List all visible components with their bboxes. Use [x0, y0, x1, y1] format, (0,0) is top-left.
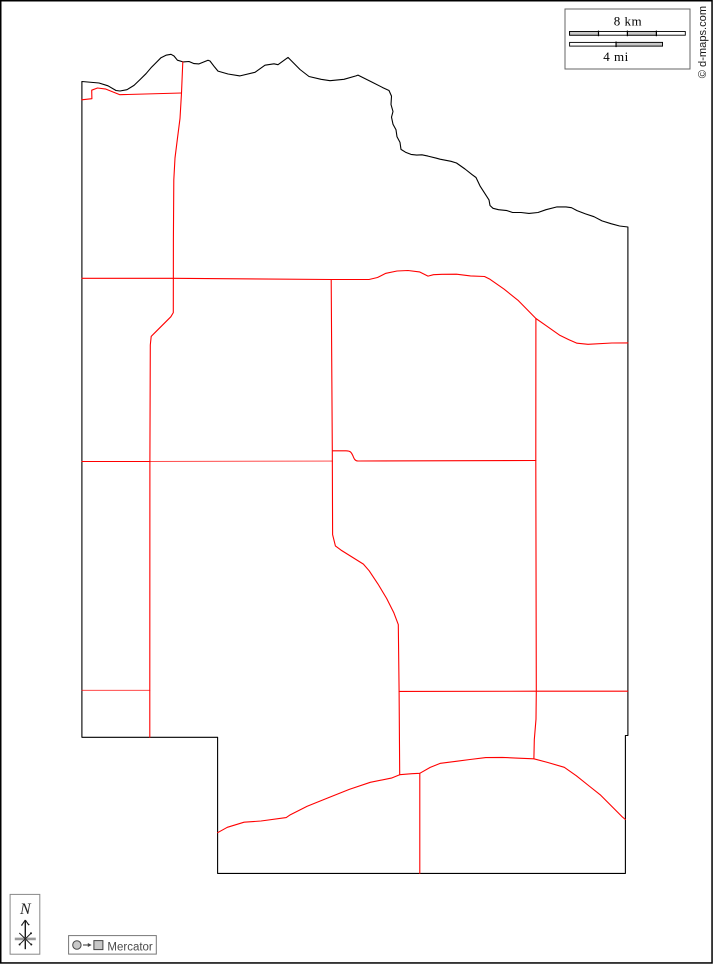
svg-text:N: N	[19, 901, 32, 918]
svg-text:© d-maps.com: © d-maps.com	[697, 6, 709, 78]
svg-text:Mercator: Mercator	[107, 942, 153, 954]
svg-text:8 km: 8 km	[614, 14, 642, 29]
svg-text:4 mi: 4 mi	[603, 49, 628, 64]
